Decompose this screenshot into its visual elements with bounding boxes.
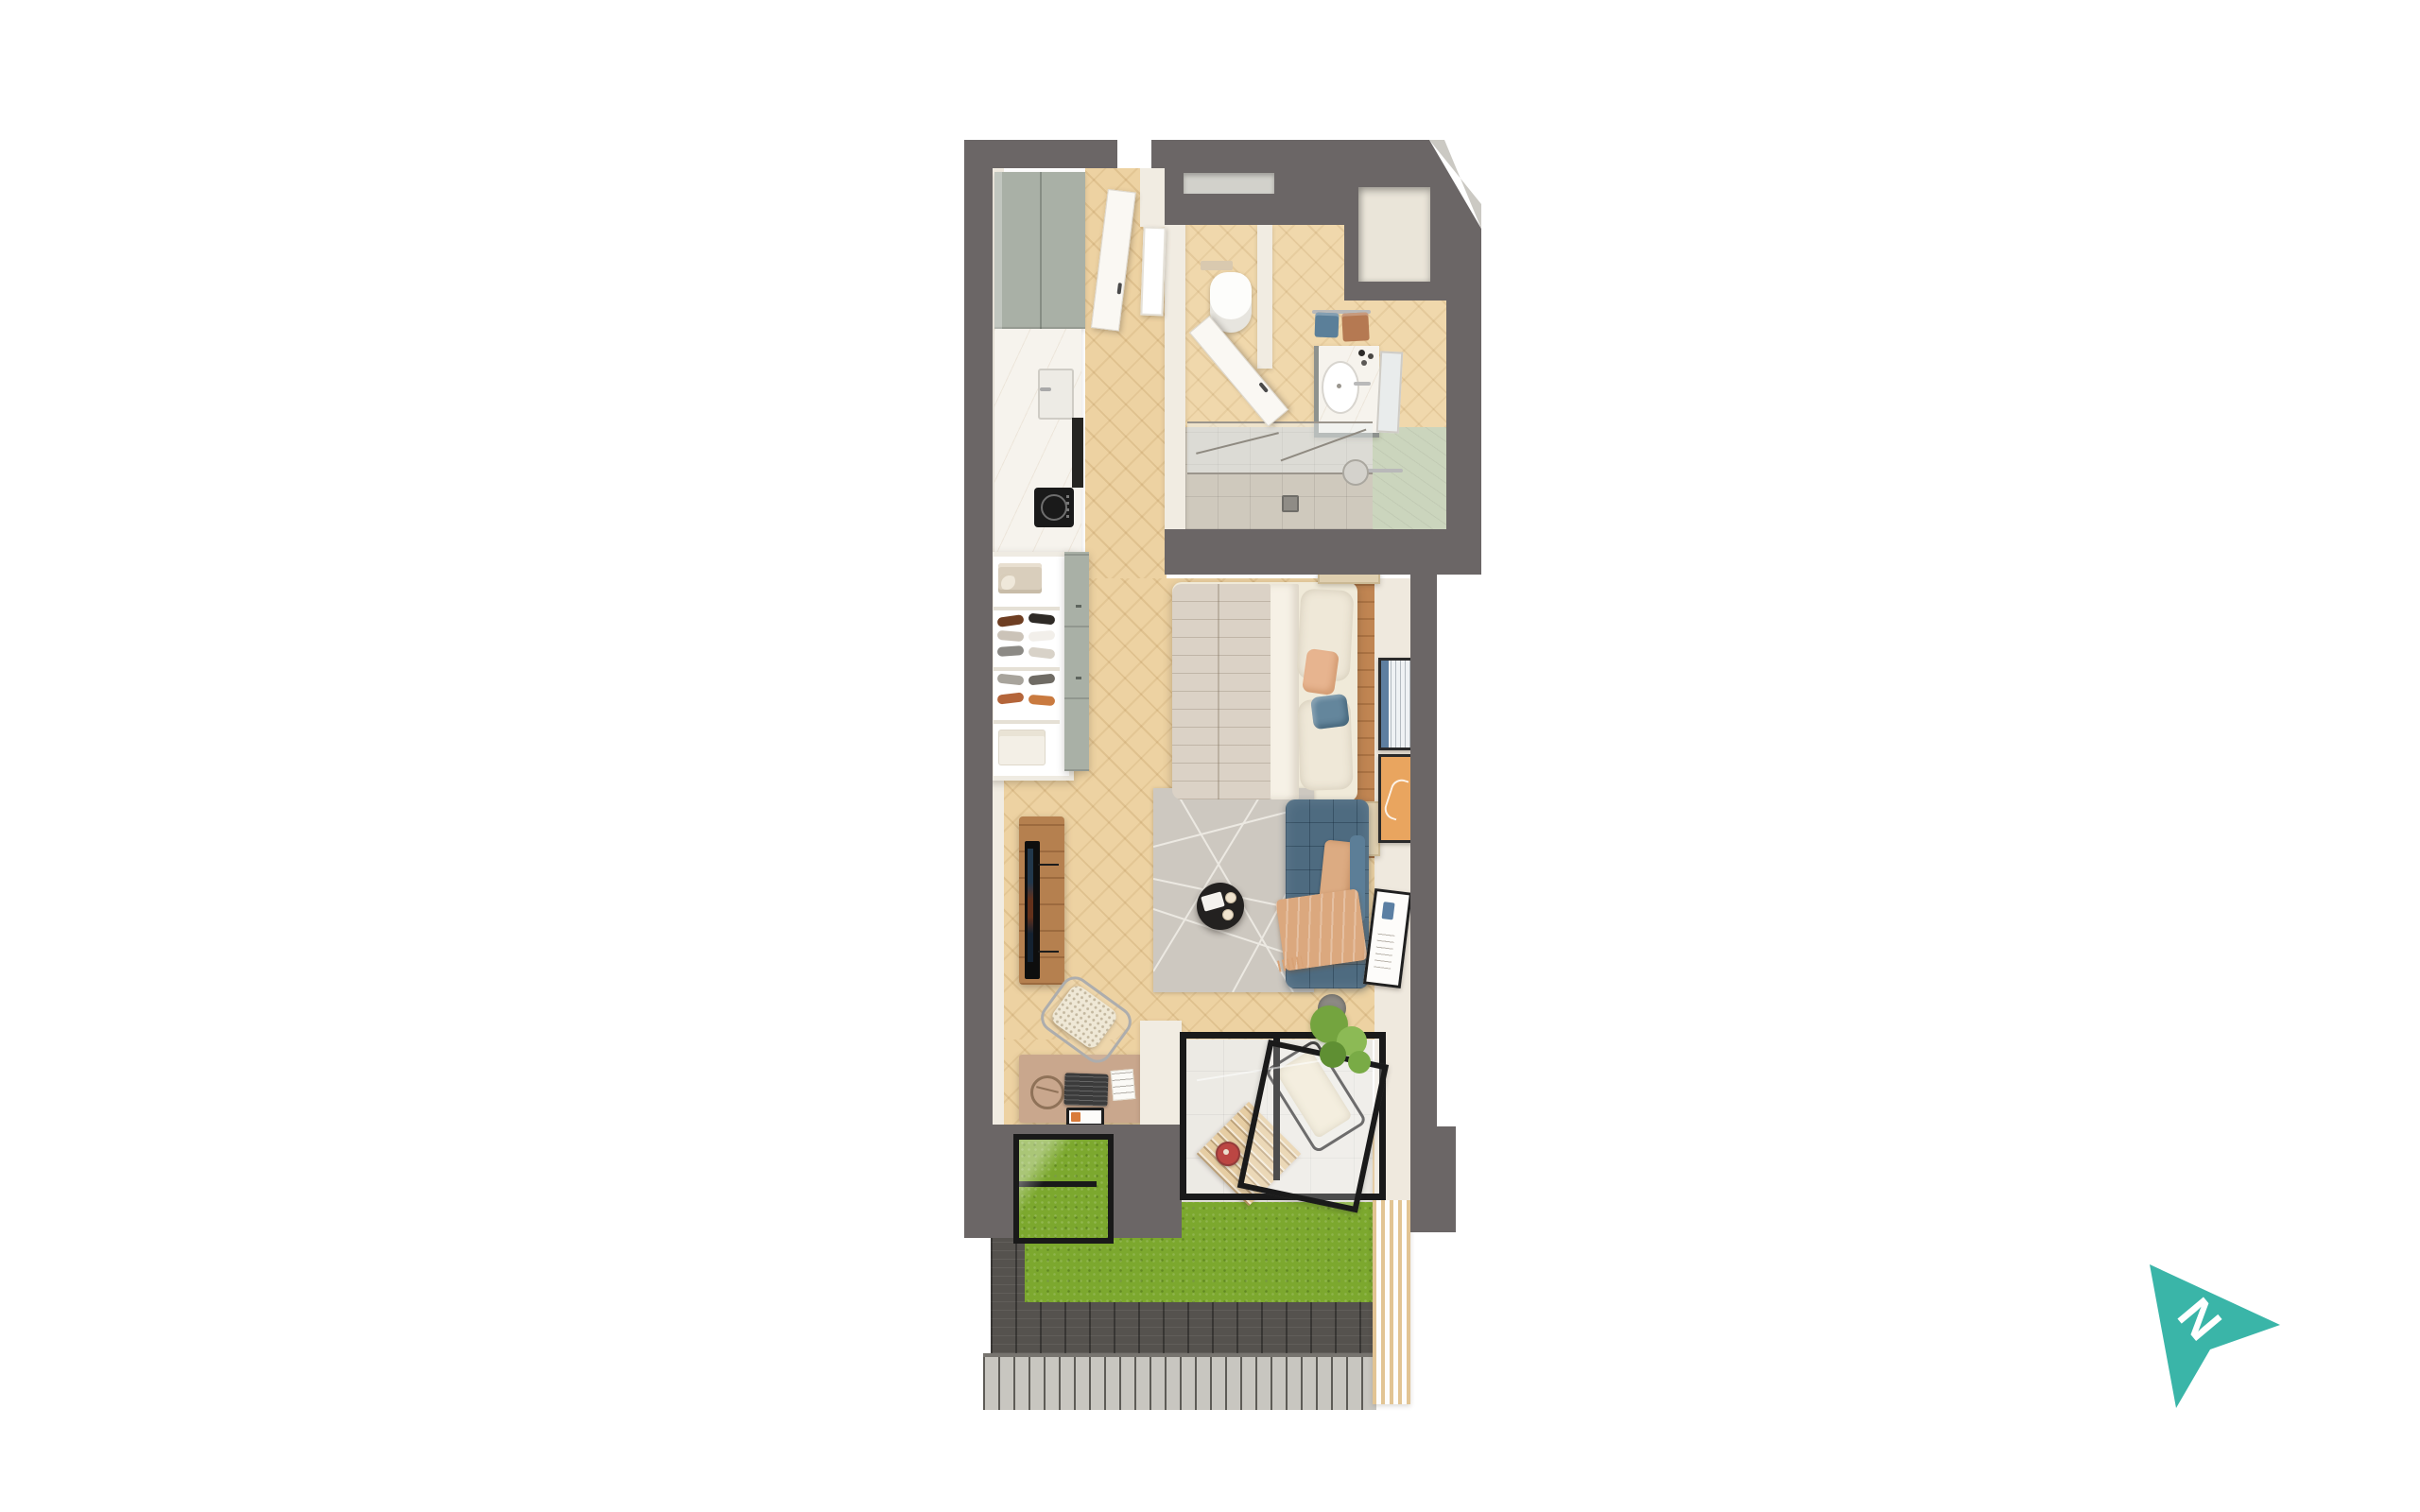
cup-2 (1222, 909, 1234, 920)
kitchen-faucet (1040, 387, 1051, 391)
tablet (1066, 1108, 1104, 1126)
toilet-flush-plate (1201, 261, 1233, 270)
glazing-side-column (1140, 1021, 1182, 1126)
wall-right-bottom (1410, 1126, 1456, 1232)
bathroom-transom-window (1184, 173, 1274, 194)
wardrobe-shelf-divider-3 (994, 720, 1060, 724)
toilet-privacy-partition (1257, 225, 1272, 369)
wall-left (964, 140, 993, 1238)
tree-foliage-4 (1348, 1051, 1371, 1074)
hob-ring (1041, 494, 1067, 521)
cushion-blue (1310, 694, 1350, 730)
bed-sheet-fold (1270, 584, 1299, 799)
drawer-handle-2 (1076, 677, 1081, 679)
rolled-towel (998, 573, 1015, 590)
note-paper (1111, 1069, 1136, 1101)
artwork-orange (1378, 754, 1414, 843)
toiletry-bottle-1 (1358, 350, 1365, 356)
entry-leaning-mirror (1140, 227, 1166, 317)
bathroom-door-handle (1258, 382, 1269, 393)
kitchen-cabinet-divider (1040, 172, 1042, 329)
drawer-handle-1 (1076, 605, 1081, 608)
basin-faucet (1354, 382, 1371, 386)
wardrobe-shelf-divider-1 (994, 607, 1060, 610)
leaning-mirror (1376, 351, 1403, 433)
north-arrow-shape (2150, 1264, 2280, 1408)
wall-bathroom-bottom (1165, 529, 1446, 575)
toiletry-bottle-3 (1361, 360, 1367, 366)
folded-shirt (998, 730, 1046, 765)
terrace-brick-border-bottom (991, 1302, 1373, 1353)
tv-stand-arm-1 (1038, 864, 1059, 866)
kitchen-counter (994, 329, 1081, 578)
hob-controls (1066, 495, 1069, 518)
tv (1025, 841, 1040, 979)
wall-right-main (1410, 575, 1437, 1132)
wardrobe-drawer-unit (1064, 552, 1089, 771)
north-arrow: N (2138, 1253, 2290, 1412)
wardrobe-shelf-divider-2 (994, 667, 1060, 671)
terrace-decking (983, 1353, 1376, 1410)
toiletry-bottle-2 (1368, 353, 1374, 359)
towel-blue (1315, 313, 1340, 338)
bed-duvet (1172, 584, 1270, 799)
entry-wall-stub (1140, 168, 1165, 227)
shoe-row-3a (997, 645, 1025, 657)
towel-brown (1341, 312, 1370, 341)
interior-window-over-grass (1013, 1134, 1114, 1244)
window-glass-sheen (1019, 1140, 1097, 1227)
shower-green-tile-wall (1373, 427, 1446, 529)
kitchen-sink (1038, 369, 1074, 420)
basin-drain (1337, 384, 1341, 388)
tablet-screen-content (1071, 1112, 1080, 1122)
wall-niche (1358, 187, 1430, 282)
rain-shower-head (1342, 459, 1369, 486)
artwork-orange-squiggle (1382, 777, 1409, 821)
built-in-oven (1072, 418, 1083, 488)
cushion-peach (1302, 648, 1340, 696)
artwork-abstract-blue-shape (1382, 902, 1395, 919)
desk-lamp-circle (1030, 1075, 1064, 1109)
floor-plan-canvas: N (0, 0, 2420, 1512)
shower-drain (1282, 495, 1299, 512)
tv-stand-arm-2 (1038, 951, 1059, 953)
laptop (1063, 1073, 1108, 1107)
artwork-abstract-lines (1374, 930, 1395, 970)
wall-top-left (964, 140, 1117, 168)
tv-screen-reflection (1028, 849, 1033, 962)
cup-1 (1225, 892, 1236, 903)
tree-foliage-3 (1320, 1041, 1346, 1068)
front-door-handle (1117, 283, 1122, 294)
artwork-blue-stripes (1378, 658, 1414, 750)
